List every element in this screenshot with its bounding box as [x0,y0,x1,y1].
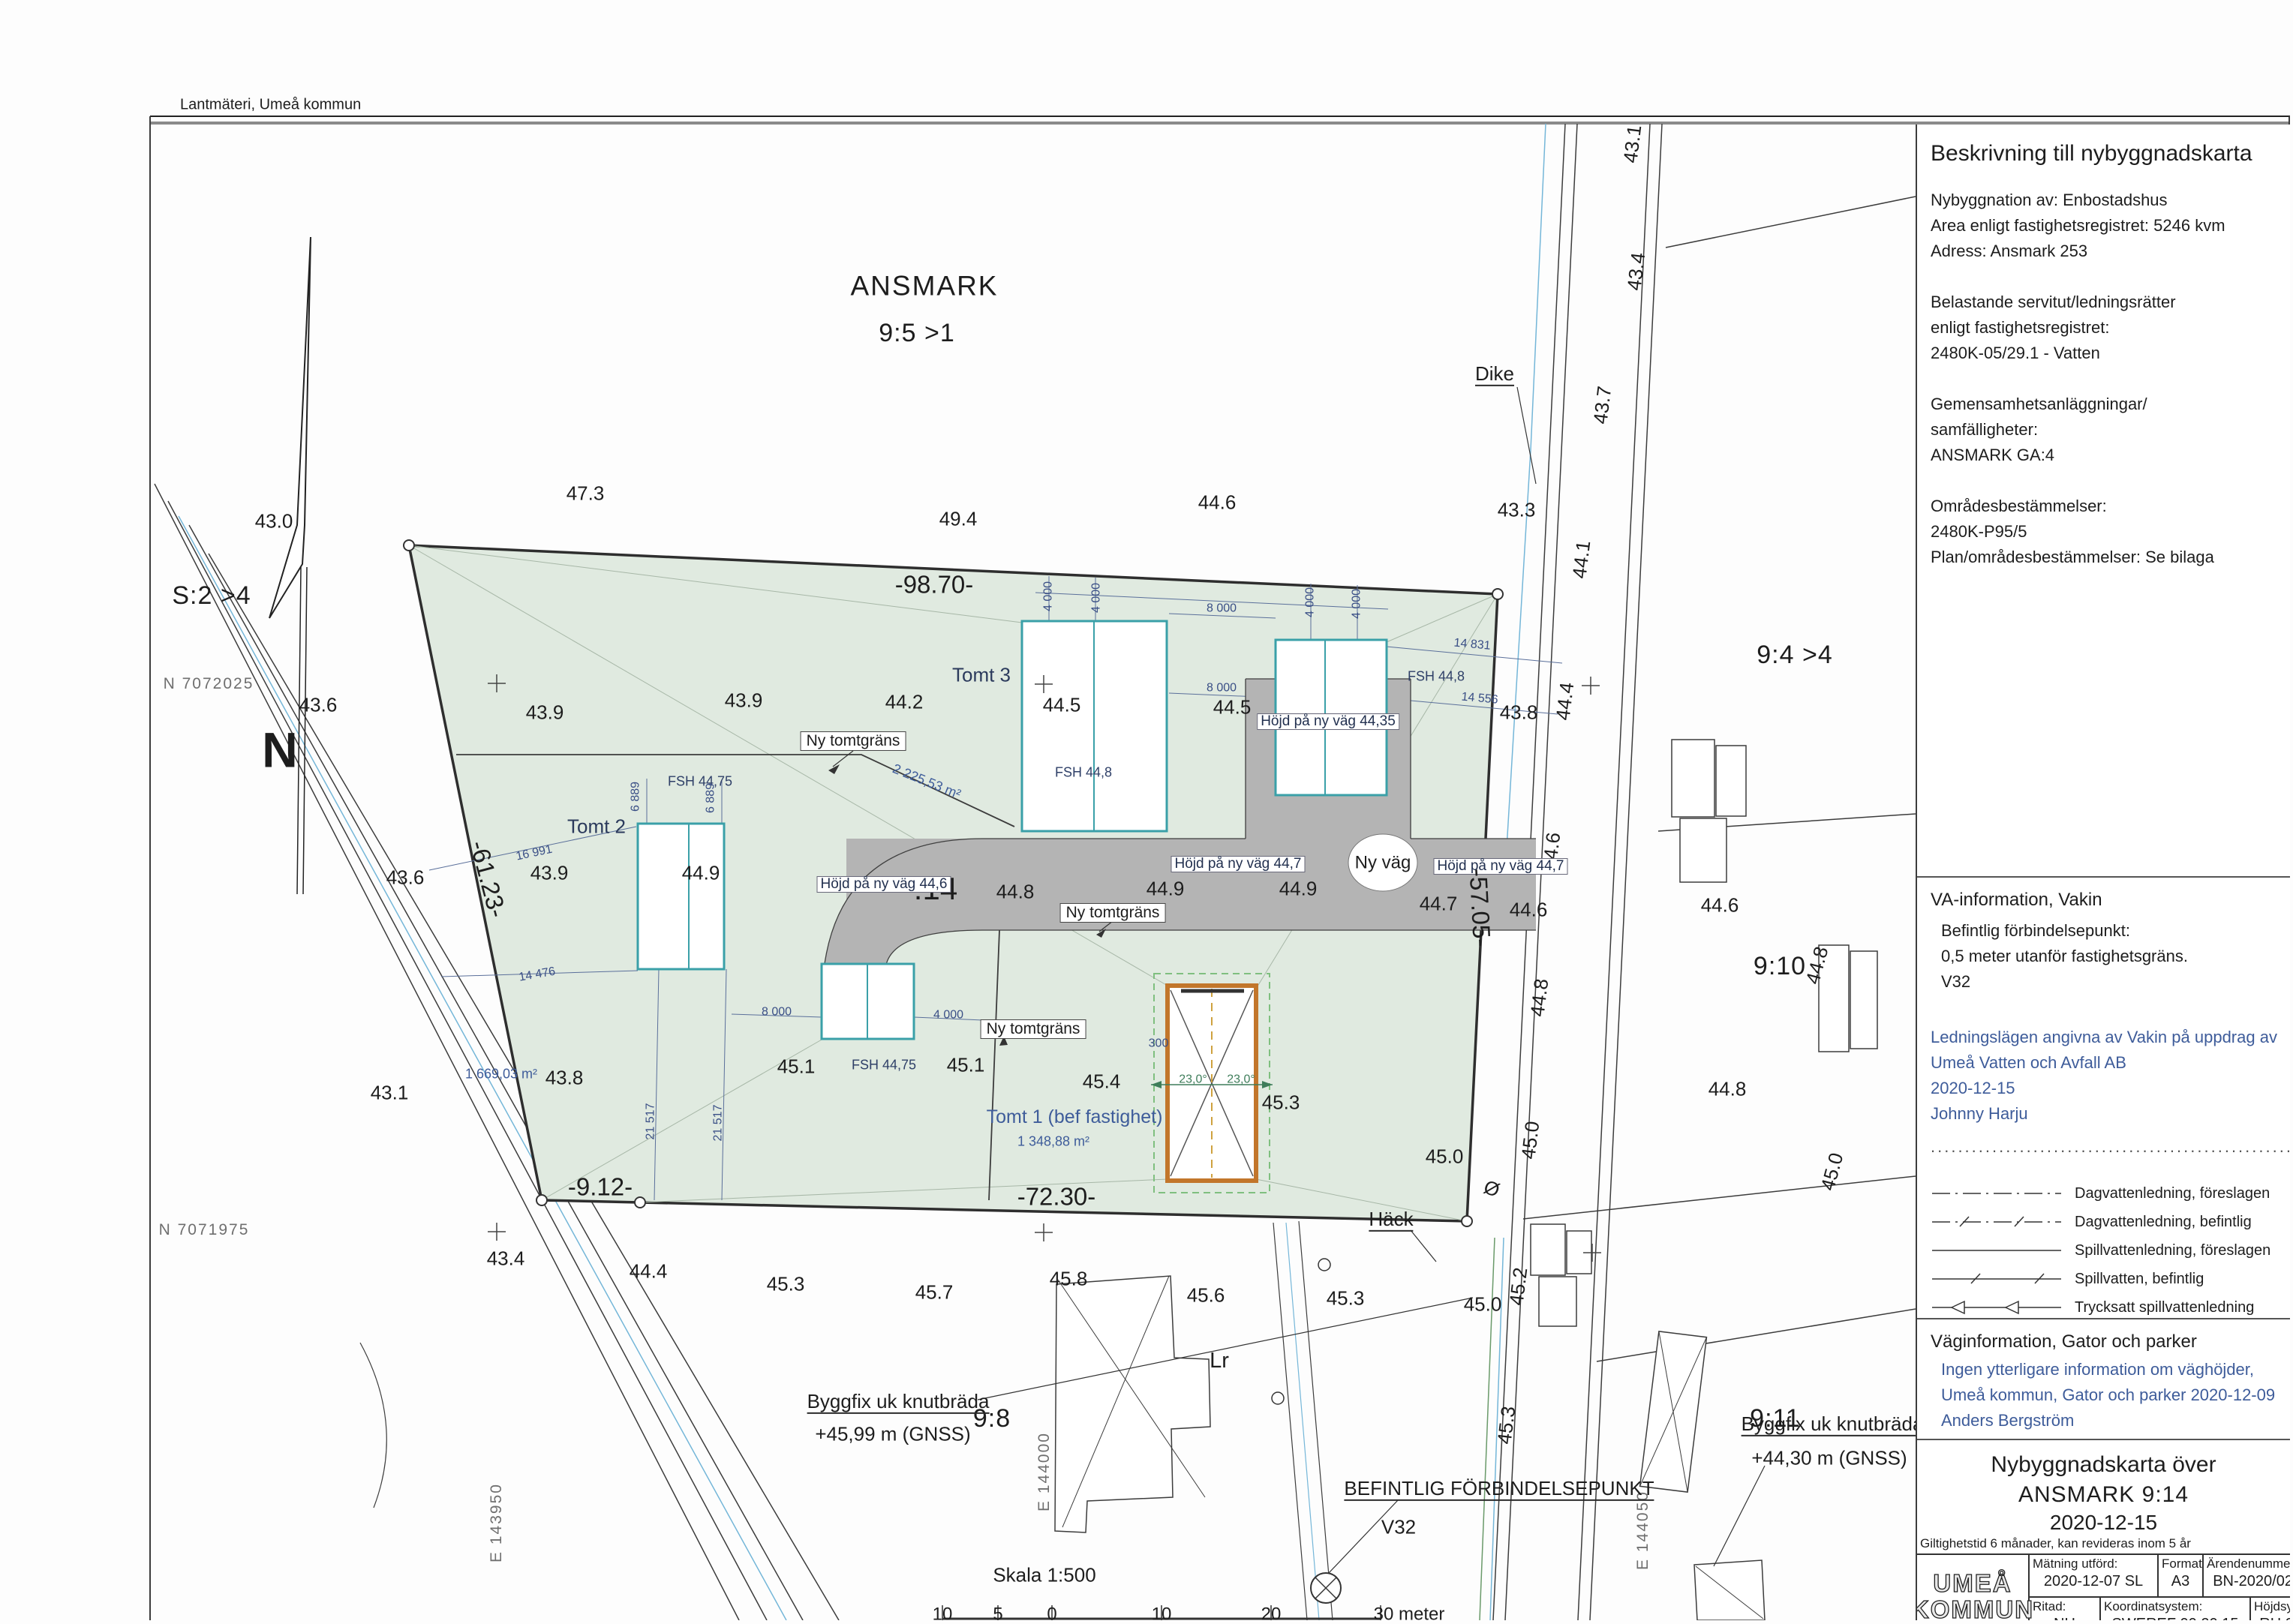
legend-line-icon [1931,1271,2063,1287]
field-value: 2020-12-07 SL [2033,1573,2154,1590]
legend-label: Spillvatten, befintlig [2063,1271,2204,1288]
umea-kommun-logo: UMEÅ KOMMUN [1917,1555,2030,1620]
field-label: Ritad: [2033,1599,2096,1614]
va-blue-line: Umeå Vatten och Avfall AB [1931,1050,2290,1076]
title-block: Nybyggnadskarta över ANSMARK 9:14 2020-1… [1917,1439,2290,1620]
field-ritad: Ritad: NH [2030,1598,2101,1620]
description-line: 2480K-05/29.1 - Vatten [1931,341,2290,366]
road-info-heading: Väginformation, Gator och parker [1931,1331,2290,1352]
field-koordinat: Koordinatsystem: SWEREF 99 20 15 [2101,1598,2251,1620]
lr-pipe [1286,1223,1319,1620]
map-title: Nybyggnadskarta över [1917,1452,2290,1478]
legend-label: Dagvattenledning, befintlig [2063,1214,2252,1231]
utility-legend: Dagvattenledning, föreslagenDagvattenled… [1931,1179,2290,1318]
logo-line-1: UMEÅ [1933,1571,2012,1597]
description-group: Belastande servitut/ledningsrätterenligt… [1931,290,2290,366]
description-line: Gemensamhetsanläggningar/ [1931,392,2290,417]
field-label: Koordinatsystem: [2104,1599,2246,1614]
legend-line-icon [1931,1185,2063,1202]
field-hojd: Höjdsystem: RH 2000 [2251,1598,2290,1620]
va-section: VA-information, Vakin Befintlig förbinde… [1917,876,2290,1318]
info-panel: Beskrivning till nybyggnadskarta Nybyggn… [1916,125,2290,1620]
road-info-line: Umeå kommun, Gator och parker 2020-12-09 [1941,1382,2290,1408]
road-info-line: Ingen ytterligare information om väghöjd… [1941,1357,2290,1382]
description-line: samfälligheter: [1931,417,2290,443]
field-value: NH [2033,1616,2096,1620]
scale-bar [942,1605,1381,1620]
field-format: Format: A3 [2159,1555,2204,1596]
description-group: Nybyggnation av: EnbostadshusArea enligt… [1931,188,2290,264]
logo-line-2: KOMMUN [1917,1597,2034,1620]
description-line: Plan/områdesbestämmelser: Se bilaga [1931,545,2290,570]
field-arende: Ärendenummer: BN-2020/02387 [2204,1555,2290,1596]
field-label: Format: [2162,1556,2199,1571]
description-line: Nybyggnation av: Enbostadshus [1931,188,2290,213]
panel-title: Beskrivning till nybyggnadskarta [1931,141,2290,167]
va-blue-line: Ledningslägen angivna av Vakin på uppdra… [1931,1025,2290,1050]
description-line: Områdesbestämmelser: [1931,494,2290,519]
va-heading: VA-information, Vakin [1931,890,2290,911]
validity-note: Giltighetstid 6 månader, kan revideras i… [1917,1536,2290,1551]
new-house [1151,974,1273,1193]
legend-label: Trycksatt spillvattenledning [2063,1299,2254,1316]
legend-line-icon [1931,1299,2063,1316]
legend-label: Dagvattenledning, föreslagen [2063,1185,2270,1202]
field-value: RH 2000 [2254,1616,2290,1620]
legend-row: Dagvattenledning, föreslagen [1931,1179,2290,1208]
va-lines: Befintlig förbindelsepunkt:0,5 meter uta… [1931,918,2290,995]
field-value: A3 [2162,1573,2199,1590]
description-line: Belastande servitut/ledningsrätter [1931,290,2290,315]
description-line: 2480K-P95/5 [1931,519,2290,545]
legend-line-icon [1931,1214,2063,1230]
legend-row: Spillvattenledning, föreslagen [1931,1236,2290,1265]
road-info-lines: Ingen ytterligare information om väghöjd… [1931,1357,2290,1433]
va-line: 0,5 meter utanför fastighetsgräns. [1931,944,2290,969]
field-value: SWEREF 99 20 15 [2104,1616,2246,1620]
va-line: V32 [1931,969,2290,995]
legend-row: Dagvattenledning, befintlig [1931,1208,2290,1236]
description-line: Area enligt fastighetsregistret: 5246 kv… [1931,213,2290,239]
map-subtitle: ANSMARK 9:14 [1917,1482,2290,1508]
nybyggnadskarta-page: { "attribution": "Lantmäteri, Umeå kommu… [0,0,2293,1620]
description-line: enligt fastighetsregistret: [1931,315,2290,341]
title-block-table: UMEÅ KOMMUN Mätning utförd: 2020-12-07 S… [1917,1553,2290,1620]
field-label: Höjdsystem: [2254,1599,2290,1614]
description-section: Beskrivning till nybyggnadskarta Nybyggn… [1917,125,2290,876]
field-label: Mätning utförd: [2033,1556,2154,1571]
field-value: BN-2020/02387 [2207,1573,2290,1590]
road-info-section: Väginformation, Gator och parker Ingen y… [1917,1318,2290,1439]
va-line: Befintlig förbindelsepunkt: [1931,918,2290,944]
legend-label: Spillvattenledning, föreslagen [2063,1242,2270,1259]
pipe-node-icon [1272,1392,1284,1404]
va-blue-lines: Ledningslägen angivna av Vakin på uppdra… [1931,1025,2290,1127]
description-line: Adress: Ansmark 253 [1931,239,2290,264]
well-icon [1311,1573,1341,1603]
ny-vag-badge [1348,834,1417,891]
description-line: ANSMARK GA:4 [1931,443,2290,468]
map-date: 2020-12-15 [1917,1511,2290,1535]
description-group: Gemensamhetsanläggningar/samfälligheter:… [1931,392,2290,468]
road-info-line: Anders Bergström [1941,1408,2290,1433]
pipe-node-icon [1318,1259,1330,1271]
field-matning: Mätning utförd: 2020-12-07 SL [2030,1555,2159,1596]
north-arrow-icon [269,237,311,894]
field-label: Ärendenummer: [2207,1556,2290,1571]
legend-row: Spillvatten, befintlig [1931,1265,2290,1293]
va-blue-line: 2020-12-15 [1931,1076,2290,1101]
va-blue-line: Johnny Harju [1931,1101,2290,1127]
legend-line-icon [1931,1242,2063,1259]
dike-line [1502,124,1546,923]
description-groups: Nybyggnation av: EnbostadshusArea enligt… [1931,188,2290,570]
description-group: Områdesbestämmelser:2480K-P95/5Plan/områ… [1931,494,2290,570]
legend-row: Trycksatt spillvattenledning [1931,1293,2290,1318]
signature-dots: ........................................… [1931,1137,2290,1157]
